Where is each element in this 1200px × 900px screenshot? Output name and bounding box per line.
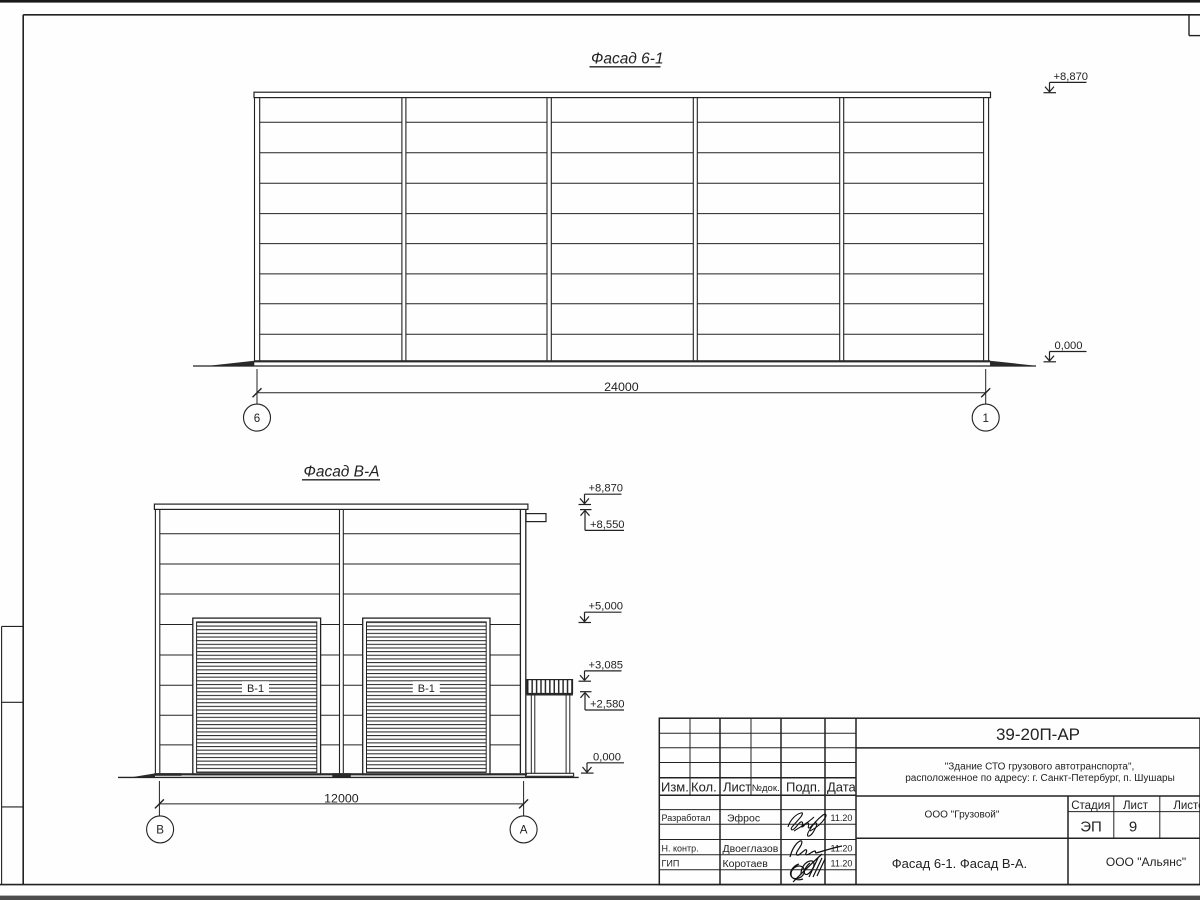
svg-text:ООО "Грузовой": ООО "Грузовой" — [925, 809, 1000, 820]
svg-text:Изм.: Изм. — [661, 780, 689, 795]
svg-text:Разработал: Разработал — [662, 813, 711, 823]
svg-text:Фасад В-А: Фасад В-А — [304, 464, 380, 481]
svg-text:+3,085: +3,085 — [589, 659, 624, 671]
svg-text:6: 6 — [254, 412, 260, 425]
svg-text:Листов: Листов — [1173, 800, 1200, 812]
svg-text:В-1: В-1 — [247, 683, 264, 695]
svg-text:А: А — [520, 824, 528, 837]
svg-text:Фасад 6-1: Фасад 6-1 — [591, 51, 664, 68]
svg-text:1: 1 — [982, 412, 988, 425]
svg-text:Эфрос: Эфрос — [727, 813, 760, 825]
svg-text:В: В — [156, 824, 164, 837]
svg-text:Стадия: Стадия — [1071, 800, 1110, 812]
svg-text:12000: 12000 — [324, 791, 359, 805]
svg-text:+5,000: +5,000 — [589, 601, 624, 613]
svg-text:Подп.: Подп. — [786, 780, 821, 795]
svg-text:+8,550: +8,550 — [590, 519, 625, 531]
svg-text:расположенное по адресу: г. Са: расположенное по адресу: г. Санкт-Петерб… — [905, 772, 1175, 784]
svg-text:ООО "Альянс": ООО "Альянс" — [1106, 855, 1186, 869]
svg-text:Дата: Дата — [827, 780, 857, 795]
svg-text:"Здание СТО грузового автотран: "Здание СТО грузового автотранспорта", — [945, 762, 1135, 773]
svg-text:+8,870: +8,870 — [1054, 71, 1089, 83]
svg-text:24000: 24000 — [604, 380, 639, 394]
svg-text:+8,870: +8,870 — [589, 483, 624, 495]
svg-text:ЭП: ЭП — [1080, 819, 1102, 836]
svg-text:№док.: №док. — [752, 783, 780, 794]
svg-text:11.20: 11.20 — [831, 859, 853, 869]
svg-text:11.20: 11.20 — [831, 813, 853, 823]
svg-text:Коротаев: Коротаев — [723, 858, 769, 870]
svg-text:39-20П-АР: 39-20П-АР — [996, 725, 1080, 744]
svg-text:Лист: Лист — [1123, 800, 1149, 812]
svg-text:Фасад 6-1. Фасад В-А.: Фасад 6-1. Фасад В-А. — [892, 856, 1027, 871]
svg-text:Лист: Лист — [723, 780, 751, 795]
svg-text:Двоеглазов: Двоеглазов — [723, 843, 779, 855]
svg-text:Н. контр.: Н. контр. — [662, 844, 699, 854]
svg-text:В-1: В-1 — [418, 683, 435, 695]
svg-text:Кол.: Кол. — [691, 780, 717, 795]
svg-text:+2,580: +2,580 — [590, 699, 625, 711]
svg-text:0,000: 0,000 — [1055, 340, 1083, 352]
svg-text:0,000: 0,000 — [593, 751, 621, 763]
svg-text:9: 9 — [1129, 819, 1137, 836]
svg-text:ГИП: ГИП — [662, 859, 680, 869]
